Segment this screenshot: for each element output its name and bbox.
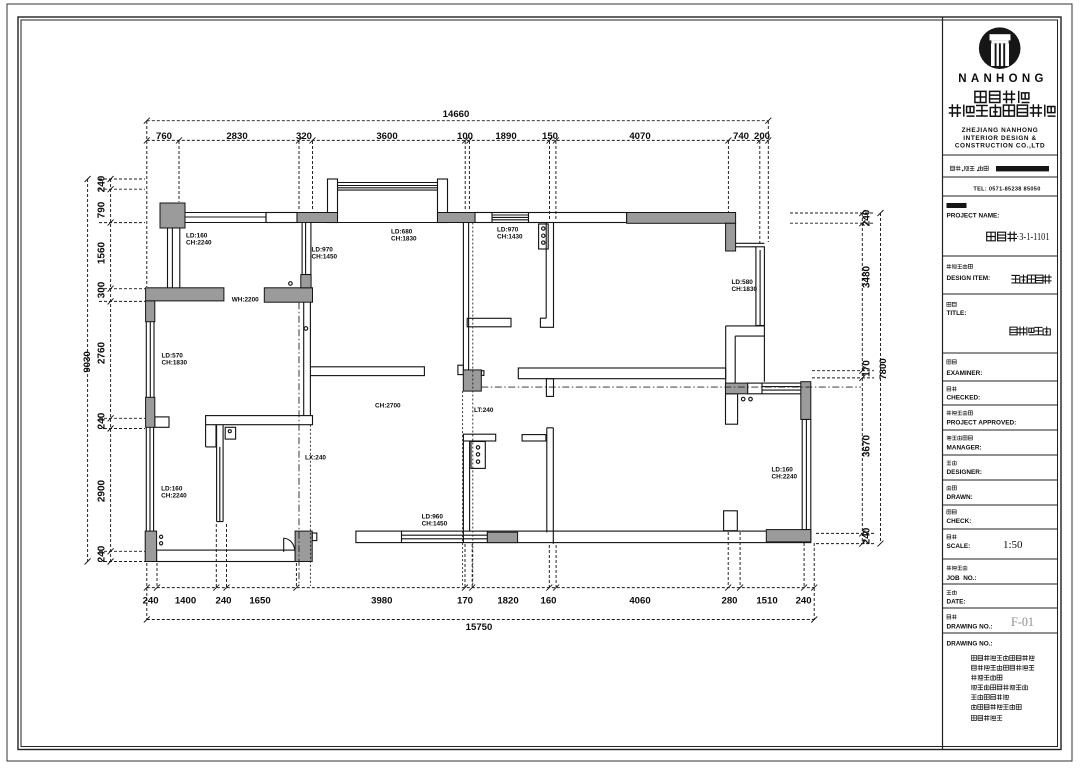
svg-text:160: 160 (540, 596, 556, 607)
svg-text:PROJECT NAME:: PROJECT NAME: (947, 213, 1000, 220)
svg-text:240: 240 (215, 596, 231, 607)
svg-text:1:50: 1:50 (1003, 539, 1023, 551)
svg-text:LD:970: LD:970 (312, 247, 334, 254)
svg-text:CHECK:: CHECK: (947, 518, 972, 525)
svg-text:CH:1450: CH:1450 (422, 521, 448, 528)
svg-text:100: 100 (457, 131, 473, 142)
svg-text:760: 760 (156, 131, 172, 142)
svg-text:150: 150 (542, 131, 558, 142)
svg-text:3670: 3670 (862, 434, 873, 457)
svg-text:CONSTRUCTION CO.,LTD: CONSTRUCTION CO.,LTD (955, 143, 1045, 150)
svg-text:4070: 4070 (629, 131, 650, 142)
svg-text:240: 240 (862, 209, 873, 226)
svg-text:DRAWING NO.:: DRAWING NO.: (947, 624, 993, 631)
svg-text:NANHONG: NANHONG (958, 73, 1048, 85)
svg-text:LD:960: LD:960 (422, 514, 444, 521)
svg-text:3480: 3480 (862, 265, 873, 288)
svg-text:DRAWN:: DRAWN: (947, 494, 973, 501)
svg-text:14660: 14660 (443, 109, 470, 120)
svg-text:CH:2240: CH:2240 (772, 474, 798, 481)
svg-text:LD:570: LD:570 (162, 353, 184, 360)
svg-text:9030: 9030 (82, 351, 93, 372)
svg-text:LD:160: LD:160 (161, 486, 183, 493)
svg-text:EXAMINER:: EXAMINER: (947, 370, 983, 377)
svg-text:CH:1450: CH:1450 (312, 254, 338, 261)
svg-text:200: 200 (754, 131, 770, 142)
svg-text:320: 320 (296, 131, 312, 142)
svg-text:LT:240: LT:240 (474, 407, 494, 414)
svg-text:LX:240: LX:240 (305, 455, 326, 462)
svg-text:280: 280 (721, 596, 737, 607)
svg-text:240: 240 (862, 527, 873, 544)
svg-text:240: 240 (97, 175, 108, 192)
svg-text:CH:1830: CH:1830 (732, 286, 758, 293)
svg-text:3600: 3600 (376, 131, 397, 142)
svg-text:CHECKED:: CHECKED: (947, 395, 981, 402)
svg-text:·3-1-1101: ·3-1-1101 (1017, 232, 1050, 243)
svg-text:1510: 1510 (756, 596, 777, 607)
svg-text:170: 170 (862, 360, 873, 377)
svg-text:2830: 2830 (226, 131, 247, 142)
svg-text:CH:2700: CH:2700 (375, 403, 401, 410)
svg-text:ZHEJIANG NANHONG: ZHEJIANG NANHONG (962, 127, 1039, 134)
svg-text:LD:970: LD:970 (497, 227, 519, 234)
svg-text:F-01: F-01 (1011, 614, 1034, 629)
svg-text:170: 170 (457, 596, 473, 607)
svg-text:DESIGNER:: DESIGNER: (947, 469, 983, 476)
svg-text:4060: 4060 (629, 596, 650, 607)
svg-text:1820: 1820 (497, 596, 518, 607)
svg-text:TITLE:: TITLE: (947, 310, 967, 317)
svg-text:7800: 7800 (878, 358, 889, 379)
svg-text:TEL: 0571-85238 85050: TEL: 0571-85238 85050 (973, 187, 1040, 193)
svg-text:LD:160: LD:160 (772, 467, 794, 474)
svg-text:240: 240 (143, 596, 159, 607)
svg-text:LD:680: LD:680 (391, 229, 413, 236)
svg-text:CH:2240: CH:2240 (161, 493, 187, 500)
svg-text:3980: 3980 (371, 596, 392, 607)
svg-text:LD:160: LD:160 (186, 233, 208, 240)
svg-text:CH:1430: CH:1430 (497, 234, 523, 241)
svg-text:SCALE:: SCALE: (947, 543, 971, 550)
svg-text:CH:1830: CH:1830 (162, 360, 188, 367)
svg-text:MANAGER:: MANAGER: (947, 445, 982, 452)
svg-text:PROJECT APPROVED:: PROJECT APPROVED: (947, 420, 1017, 427)
svg-text:LD:580: LD:580 (732, 279, 754, 286)
svg-text:INTERIOR DESIGN &: INTERIOR DESIGN & (963, 135, 1036, 142)
svg-text:740: 740 (733, 131, 749, 142)
svg-text:1560: 1560 (97, 241, 108, 264)
svg-text:DATE:: DATE: (947, 599, 966, 606)
svg-text:300: 300 (97, 281, 108, 298)
svg-text:CH:1830: CH:1830 (391, 236, 417, 243)
svg-text:2760: 2760 (97, 341, 108, 364)
svg-text:2900: 2900 (97, 479, 108, 502)
svg-text:DESIGN ITEM:: DESIGN ITEM: (947, 275, 991, 282)
svg-text:240: 240 (796, 596, 812, 607)
svg-text:CH:2240: CH:2240 (186, 240, 212, 247)
svg-text:15750: 15750 (466, 622, 493, 633)
svg-text:240: 240 (97, 412, 108, 429)
svg-text:790: 790 (97, 201, 108, 218)
svg-text:1400: 1400 (175, 596, 196, 607)
svg-text:JOB NO.:: JOB NO.: (947, 575, 977, 582)
svg-text:1650: 1650 (249, 596, 270, 607)
svg-text:DRAWING NO.:: DRAWING NO.: (947, 641, 993, 648)
svg-text:240: 240 (97, 545, 108, 562)
svg-text:1890: 1890 (495, 131, 516, 142)
svg-text:WH:2200: WH:2200 (232, 297, 259, 304)
